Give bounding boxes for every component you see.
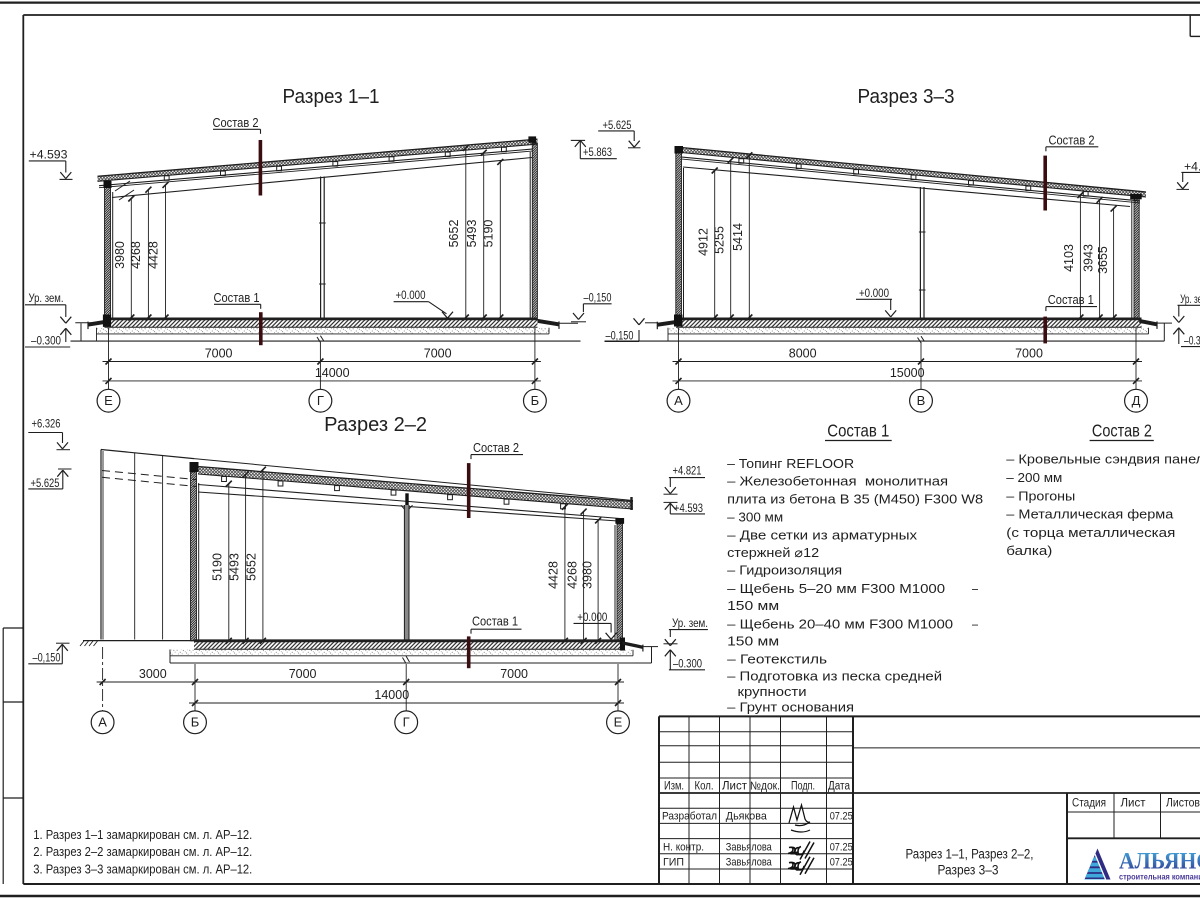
svg-text:Ур. зем.: Ур. зем.: [29, 291, 64, 305]
svg-text:3943: 3943: [1081, 244, 1095, 272]
svg-text:– Щебень 20–40 мм F300 М1000: – Щебень 20–40 мм F300 М1000: [727, 616, 953, 631]
svg-text:Разрез 1–1: Разрез 1–1: [283, 85, 380, 108]
svg-text:Состав 2: Состав 2: [473, 441, 519, 455]
svg-text:4268: 4268: [129, 241, 143, 269]
svg-text:8000: 8000: [789, 347, 817, 361]
svg-text:–0,150: –0,150: [33, 650, 61, 664]
svg-text:+0.000: +0.000: [859, 286, 889, 300]
svg-text:+5.863: +5.863: [583, 145, 612, 159]
svg-text:– Геотекстиль: – Геотекстиль: [727, 652, 827, 667]
svg-text:Разработал: Разработал: [662, 811, 717, 823]
svg-text:– Железобетонная монолитная: – Железобетонная монолитная: [727, 474, 948, 489]
svg-text:крупности: крупности: [738, 684, 807, 699]
svg-text:ГИП: ГИП: [663, 857, 684, 869]
svg-text:+4.821: +4.821: [673, 464, 702, 478]
svg-text:3000: 3000: [139, 667, 167, 681]
svg-text:– 200 мм: – 200 мм: [1006, 470, 1062, 485]
svg-text:Состав 1: Состав 1: [1048, 293, 1094, 307]
svg-text:+6.326: +6.326: [32, 417, 61, 431]
svg-text:+5.625: +5.625: [31, 476, 60, 490]
svg-text:Состав 2: Состав 2: [213, 116, 259, 130]
svg-text:– 300 мм: – 300 мм: [727, 509, 783, 524]
svg-text:4428: 4428: [147, 241, 161, 269]
svg-text:Кол.: Кол.: [695, 781, 714, 793]
svg-text:7000: 7000: [500, 667, 528, 681]
svg-text:Изм.: Изм.: [664, 781, 684, 793]
svg-text:–: –: [972, 616, 979, 631]
svg-text:Состав 1: Состав 1: [472, 615, 518, 629]
svg-text:+0.000: +0.000: [396, 288, 426, 302]
svg-text:–0.300: –0.300: [1184, 333, 1200, 347]
svg-text:7000: 7000: [205, 347, 233, 361]
svg-text:5652: 5652: [447, 220, 461, 248]
svg-text:Состав 2: Состав 2: [1092, 421, 1152, 441]
svg-text:Дата: Дата: [828, 781, 851, 793]
svg-text:7000: 7000: [289, 667, 317, 681]
svg-text:–0,150: –0,150: [606, 329, 634, 343]
svg-text:+4.593: +4.593: [674, 501, 703, 515]
svg-text:– Гидроизоляция: – Гидроизоляция: [727, 563, 842, 578]
svg-text:5190: 5190: [211, 553, 225, 581]
svg-text:Лист: Лист: [722, 781, 748, 793]
svg-text:А: А: [674, 393, 683, 408]
svg-text:Ур. зем.: Ур. зем.: [1180, 292, 1200, 306]
svg-text:07.25: 07.25: [830, 811, 853, 823]
svg-text:Разрез 3–3: Разрез 3–3: [858, 85, 955, 108]
svg-text:Б: Б: [191, 715, 200, 730]
svg-text:– Прогоны: – Прогоны: [1006, 488, 1075, 503]
svg-text:5652: 5652: [245, 553, 259, 581]
svg-text:Г: Г: [317, 393, 324, 408]
svg-text:–0.300: –0.300: [31, 334, 61, 348]
svg-text:3655: 3655: [1096, 246, 1110, 274]
svg-text:5414: 5414: [731, 223, 745, 251]
svg-text:3980: 3980: [113, 241, 127, 269]
svg-text:– Две сетки из арматурных: – Две сетки из арматурных: [727, 527, 917, 542]
svg-text:+4.2: +4.2: [1184, 159, 1200, 173]
svg-text:Состав 1: Состав 1: [827, 421, 889, 441]
svg-text:5255: 5255: [712, 226, 726, 254]
svg-text:1. Разрез 1–1 замаркирован см.: 1. Разрез 1–1 замаркирован см. л. АР–12.: [33, 827, 252, 842]
svg-text:4103: 4103: [1062, 244, 1076, 272]
svg-text:Завьялова: Завьялова: [726, 857, 773, 869]
svg-text:4912: 4912: [696, 228, 710, 256]
svg-text:Ур. зем.: Ур. зем.: [672, 616, 708, 630]
svg-text:Состав 2: Состав 2: [1049, 133, 1095, 147]
svg-text:Лист: Лист: [1121, 795, 1147, 809]
svg-text:–: –: [972, 581, 979, 596]
svg-text:– Кровельные сэндвия панели: – Кровельные сэндвия панели: [1006, 452, 1200, 467]
svg-text:07.25: 07.25: [830, 857, 853, 869]
svg-text:Е: Е: [614, 715, 623, 730]
svg-text:Г: Г: [403, 715, 410, 730]
svg-text:Стадия: Стадия: [1072, 795, 1106, 809]
svg-text:плита из бетона B 35 (М450) F3: плита из бетона B 35 (М450) F300 W8: [727, 491, 983, 506]
svg-text:5493: 5493: [227, 553, 241, 581]
svg-text:Д: Д: [1132, 393, 1141, 408]
svg-text:14000: 14000: [315, 366, 350, 380]
svg-text:7000: 7000: [424, 347, 452, 361]
svg-text:4428: 4428: [547, 561, 561, 589]
svg-text:+4.593: +4.593: [30, 147, 68, 161]
svg-text:–0.300: –0.300: [673, 656, 702, 670]
svg-text:балка): балка): [1006, 543, 1052, 558]
svg-text:15000: 15000: [890, 366, 925, 380]
svg-text:5493: 5493: [465, 220, 479, 248]
svg-text:Б: Б: [531, 393, 540, 408]
svg-text:– Грунт основания: – Грунт основания: [727, 700, 854, 715]
svg-text:В: В: [917, 393, 926, 408]
svg-text:Е: Е: [104, 393, 113, 408]
svg-text:(с торца металлическая: (с торца металлическая: [1006, 525, 1175, 540]
svg-text:14000: 14000: [374, 688, 409, 702]
svg-text:– Топинг REFLOOR: – Топинг REFLOOR: [727, 456, 854, 471]
svg-text:– Подготовка из песка средней: – Подготовка из песка средней: [727, 668, 942, 683]
svg-text:4268: 4268: [565, 561, 579, 589]
svg-text:+0.000: +0.000: [577, 610, 607, 624]
svg-text:Разрез 3–3: Разрез 3–3: [938, 863, 999, 878]
svg-text:№док.: №док.: [750, 781, 780, 793]
svg-text:7000: 7000: [1015, 347, 1043, 361]
svg-text:3. Разрез 3–3 замаркирован см.: 3. Разрез 3–3 замаркирован см. л. АР–12.: [33, 861, 252, 876]
svg-text:Дьякова: Дьякова: [726, 811, 768, 823]
svg-text:– Щебень 5–20 мм F300 М1000: – Щебень 5–20 мм F300 М1000: [727, 581, 945, 596]
svg-text:Разрез 2–2: Разрез 2–2: [324, 413, 427, 436]
svg-text:– Металлическая ферма: – Металлическая ферма: [1006, 507, 1174, 522]
svg-text:Завьялова: Завьялова: [726, 841, 773, 853]
svg-text:Подп.: Подп.: [791, 781, 815, 793]
svg-text:3980: 3980: [580, 561, 594, 589]
svg-text:150 мм: 150 мм: [727, 634, 779, 649]
svg-text:Состав 1: Состав 1: [214, 291, 260, 305]
svg-text:стержней ⌀12: стержней ⌀12: [727, 545, 819, 560]
svg-text:2. Разрез 2–2 замаркирован см.: 2. Разрез 2–2 замаркирован см. л. АР–12.: [33, 844, 252, 859]
svg-text:Разрез 1–1, Разрез 2–2,: Разрез 1–1, Разрез 2–2,: [906, 846, 1034, 861]
svg-text:150 мм: 150 мм: [727, 598, 779, 613]
svg-text:+5.625: +5.625: [603, 118, 632, 132]
svg-text:–0,150: –0,150: [584, 291, 612, 305]
svg-text:07.25: 07.25: [830, 841, 853, 853]
svg-text:Листов: Листов: [1166, 795, 1200, 809]
svg-text:АЛЬЯНС: АЛЬЯНС: [1119, 849, 1200, 875]
svg-text:строительная компания: строительная компания: [1119, 872, 1200, 881]
svg-text:А: А: [98, 715, 107, 730]
svg-text:Н. контр.: Н. контр.: [663, 841, 704, 853]
svg-text:5190: 5190: [482, 220, 496, 248]
